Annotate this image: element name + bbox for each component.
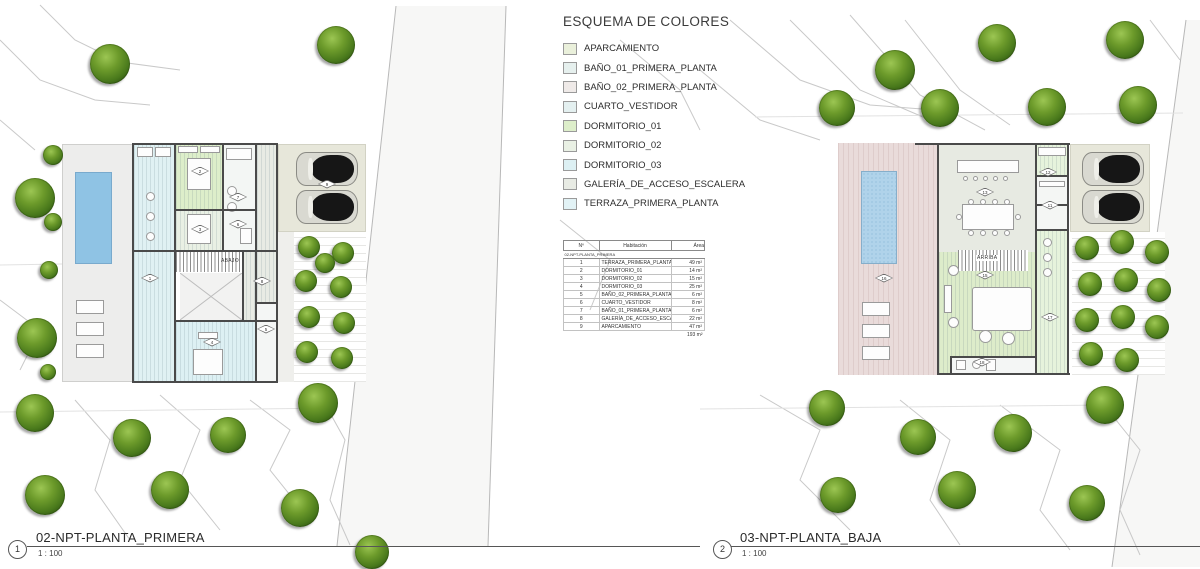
room-tag: 11 xyxy=(1041,201,1059,210)
legend-swatch xyxy=(563,120,577,132)
wall xyxy=(937,373,1070,375)
view-scale: 1 : 100 xyxy=(38,549,62,558)
schedule-cell-num: 9 xyxy=(564,323,600,331)
wall xyxy=(950,356,952,375)
legend-item: CUARTO_VESTIDOR xyxy=(563,97,745,116)
legend-item: DORMITORIO_03 xyxy=(563,155,745,174)
stool xyxy=(983,176,988,181)
room-tag: 15 xyxy=(976,271,994,280)
room-tag: 17 xyxy=(1041,313,1059,322)
schedule-row: 8GALERÍA_DE_ACCESO_ESCALERA22 m² xyxy=(564,315,705,323)
schedule-row: 6CUARTO_VESTIDOR8 m² xyxy=(564,299,705,307)
wardrobe xyxy=(200,146,220,153)
view-number-badge: 2 xyxy=(713,540,732,559)
wall xyxy=(174,145,176,381)
stair-direction-label: ARRIBA xyxy=(976,255,998,261)
wall xyxy=(222,145,224,252)
schedule-cell-name: DORMITORIO_01 xyxy=(599,267,671,275)
wall xyxy=(174,320,277,322)
schedule-cell-area: 14 m² xyxy=(671,267,704,275)
schedule-cell-name: DORMITORIO_02 xyxy=(599,275,671,283)
schedule-cell-num: 3 xyxy=(564,275,600,283)
schedule-body: 02-NPT-PLANTA_PRIMERA 1TERRAZA_PRIMERA_P… xyxy=(564,251,705,331)
court-cross-lines xyxy=(180,273,242,320)
schedule-cell-name: TERRAZA_PRIMERA_PLANTA xyxy=(599,259,671,267)
schedule-cell-name: BAÑO_01_PRIMERA_PLANTA xyxy=(599,307,671,315)
room-tag: 6 xyxy=(229,220,247,229)
legend-swatch xyxy=(563,198,577,210)
shower xyxy=(240,228,252,244)
schedule-row: 3DORMITORIO_0215 m² xyxy=(564,275,705,283)
room-tag-number: 12 xyxy=(1039,168,1057,177)
color-scheme-legend: ESQUEMA DE COLORES APARCAMIENTOBAÑO_01_P… xyxy=(563,8,745,214)
bathtub xyxy=(226,148,252,160)
schedule-cell-area: 25 m² xyxy=(671,283,704,291)
chair xyxy=(968,199,974,205)
swimming-pool xyxy=(75,172,112,264)
sheet-canvas: ABAJO xyxy=(0,0,1200,567)
room-tag: 1 xyxy=(141,274,159,283)
room-tag-number: 13 xyxy=(976,188,994,197)
stair-direction-label: ABAJO xyxy=(221,258,239,264)
schedule-row: 1TERRAZA_PRIMERA_PLANTA49 m² xyxy=(564,259,705,267)
schedule-row: 4DORMITORIO_0325 m² xyxy=(564,283,705,291)
schedule-cell-name: APARCAMIENTO xyxy=(599,323,671,331)
view-title: 02-NPT-PLANTA_PRIMERA xyxy=(36,530,205,545)
closet xyxy=(1039,181,1065,187)
closet xyxy=(137,147,153,157)
schedule-row: 2DORMITORIO_0114 m² xyxy=(564,267,705,275)
room-bano-02 xyxy=(257,302,276,381)
room-tag-number: 9 xyxy=(318,180,336,189)
schedule-group-row: 02-NPT-PLANTA_PRIMERA xyxy=(564,251,705,259)
room-tag-number: 4 xyxy=(203,338,221,347)
schedule-cell-area: 6 m² xyxy=(671,291,704,299)
room-tag: 3 xyxy=(191,225,209,234)
schedule-cell-name: BAÑO_02_PRIMERA_PLANTA xyxy=(599,291,671,299)
room-tag: 7 xyxy=(229,193,247,202)
stool xyxy=(993,176,998,181)
side-walkway xyxy=(278,232,294,382)
chair xyxy=(968,230,974,236)
schedule-row: 7BAÑO_01_PRIMERA_PLANTA6 m² xyxy=(564,307,705,315)
schedule-cell-area: 15 m² xyxy=(671,275,704,283)
chair xyxy=(980,230,986,236)
room-tag-number: 18 xyxy=(973,358,991,367)
sun-lounger xyxy=(862,302,890,316)
legend-item-label: TERRAZA_PRIMERA_PLANTA xyxy=(584,198,718,209)
sun-lounger xyxy=(862,324,890,338)
legend-items: APARCAMIENTOBAÑO_01_PRIMERA_PLANTABAÑO_0… xyxy=(563,39,745,214)
wall xyxy=(950,356,1036,358)
room-tag: 9 xyxy=(318,180,336,189)
legend-item-label: BAÑO_02_PRIMERA_PLANTA xyxy=(584,82,717,93)
legend-item: BAÑO_01_PRIMERA_PLANTA xyxy=(563,58,745,77)
legend-item-label: DORMITORIO_02 xyxy=(584,140,661,151)
legend-swatch xyxy=(563,62,577,74)
room-tag: 5 xyxy=(257,325,275,334)
terrace-plant xyxy=(146,212,155,221)
room-tag: 4 xyxy=(203,338,221,347)
sun-lounger xyxy=(76,300,104,314)
schedule-header-number: Nº xyxy=(564,241,600,251)
legend-title: ESQUEMA DE COLORES xyxy=(563,14,745,29)
schedule-row: 5BAÑO_02_PRIMERA_PLANTA6 m² xyxy=(564,291,705,299)
legend-item-label: DORMITORIO_03 xyxy=(584,160,661,171)
room-tag-number: 2 xyxy=(191,167,209,176)
console xyxy=(944,285,952,313)
sofa xyxy=(972,287,1032,331)
legend-swatch xyxy=(563,140,577,152)
chair xyxy=(1004,230,1010,236)
schedule-cell-area: 6 m² xyxy=(671,307,704,315)
schedule-cell-num: 1 xyxy=(564,259,600,267)
wall xyxy=(1035,143,1037,375)
dining-table xyxy=(962,204,1014,230)
legend-item: DORMITORIO_02 xyxy=(563,136,745,155)
schedule-total-row: 193 m² xyxy=(564,331,705,339)
chair xyxy=(1004,199,1010,205)
chair xyxy=(992,230,998,236)
legend-item-label: APARCAMIENTO xyxy=(584,43,659,54)
legend-item-label: DORMITORIO_01 xyxy=(584,121,661,132)
room-tag-number: 17 xyxy=(1041,313,1059,322)
chair xyxy=(1015,214,1021,220)
room-tag-number: 7 xyxy=(229,193,247,202)
room-tag-number: 1 xyxy=(141,274,159,283)
wall xyxy=(937,143,939,375)
legend-item: APARCAMIENTO xyxy=(563,39,745,58)
garden-strip xyxy=(1072,232,1165,375)
schedule-cell-num: 7 xyxy=(564,307,600,315)
legend-item: BAÑO_02_PRIMERA_PLANTA xyxy=(563,78,745,97)
stool xyxy=(963,176,968,181)
schedule-cell-area: 49 m² xyxy=(671,259,704,267)
schedule-cell-num: 8 xyxy=(564,315,600,323)
wall xyxy=(1067,143,1069,375)
room-tag-number: 5 xyxy=(257,325,275,334)
schedule-cell-name: CUARTO_VESTIDOR xyxy=(599,299,671,307)
legend-item: TERRAZA_PRIMERA_PLANTA xyxy=(563,194,745,213)
swimming-pool xyxy=(861,171,897,264)
schedule-cell-name: DORMITORIO_03 xyxy=(599,283,671,291)
chair xyxy=(992,199,998,205)
wardrobe xyxy=(178,146,198,153)
legend-swatch xyxy=(563,178,577,190)
car-cabin xyxy=(1097,193,1140,221)
schedule-cell-num: 2 xyxy=(564,267,600,275)
room-terraza xyxy=(134,145,174,381)
porch-plant xyxy=(1043,238,1052,247)
porch-plant xyxy=(1043,253,1052,262)
coffee-table xyxy=(1002,332,1015,345)
car xyxy=(1082,152,1144,186)
view-title-line xyxy=(731,546,1200,547)
closet xyxy=(155,147,171,157)
sun-lounger xyxy=(76,344,104,358)
stool xyxy=(973,176,978,181)
wall xyxy=(132,250,278,252)
view-number-badge: 1 xyxy=(8,540,27,559)
room-entrada xyxy=(1036,206,1067,230)
path xyxy=(180,273,242,320)
wall xyxy=(132,381,278,383)
schedule-header-row: Nº Habitación Área xyxy=(564,241,705,251)
chair xyxy=(980,199,986,205)
tfoot: 193 m² xyxy=(564,331,705,339)
legend-item-label: GALERÍA_DE_ACCESO_ESCALERA xyxy=(584,179,745,190)
thead: Nº Habitación Área xyxy=(564,241,705,251)
sun-lounger xyxy=(76,322,104,336)
room-tag: 18 xyxy=(973,358,991,367)
wall xyxy=(255,302,277,304)
car xyxy=(296,190,358,224)
room-tag: 16 xyxy=(875,274,893,283)
room-schedule-table: Nº Habitación Área 02-NPT-PLANTA_PRIMERA… xyxy=(563,240,705,338)
legend-item-label: BAÑO_01_PRIMERA_PLANTA xyxy=(584,63,717,74)
sun-lounger xyxy=(862,346,890,360)
terrace-plant xyxy=(146,192,155,201)
kitchen-island xyxy=(957,160,1019,173)
room-tag-number: 3 xyxy=(191,225,209,234)
wall xyxy=(242,250,244,320)
legend-swatch xyxy=(563,159,577,171)
bed xyxy=(193,349,223,375)
room-tag: 2 xyxy=(191,167,209,176)
legend-swatch xyxy=(563,43,577,55)
room-tag: 13 xyxy=(976,188,994,197)
stool xyxy=(1003,176,1008,181)
legend-item: DORMITORIO_01 xyxy=(563,117,745,136)
chair xyxy=(956,214,962,220)
room-tag-number: 8 xyxy=(253,277,271,286)
view-scale: 1 : 100 xyxy=(742,549,766,558)
porch-plant xyxy=(1043,268,1052,277)
room-tag-number: 15 xyxy=(976,271,994,280)
wall xyxy=(132,143,134,383)
armchair xyxy=(948,265,959,276)
armchair xyxy=(948,317,959,328)
room-tag-number: 6 xyxy=(229,220,247,229)
closet xyxy=(1038,147,1066,156)
room-tag: 8 xyxy=(253,277,271,286)
coffee-table xyxy=(979,330,992,343)
legend-item-label: CUARTO_VESTIDOR xyxy=(584,101,678,112)
schedule-cell-area: 47 m² xyxy=(671,323,704,331)
terrace-plant xyxy=(146,232,155,241)
room-tag-number: 16 xyxy=(875,274,893,283)
schedule-cell-area: 22 m² xyxy=(671,315,704,323)
car-cabin xyxy=(311,193,354,221)
garden-strip xyxy=(294,232,366,382)
schedule-total-value: 193 m² xyxy=(564,331,705,339)
view-title: 03-NPT-PLANTA_BAJA xyxy=(740,530,881,545)
wall xyxy=(255,145,257,381)
schedule-group-label: 02-NPT-PLANTA_PRIMERA xyxy=(564,251,705,259)
sink xyxy=(956,360,966,370)
schedule-cell-num: 6 xyxy=(564,299,600,307)
schedule-cell-num: 4 xyxy=(564,283,600,291)
wall xyxy=(1035,229,1068,231)
schedule-cell-area: 8 m² xyxy=(671,299,704,307)
car-cabin xyxy=(1097,155,1140,183)
legend-swatch xyxy=(563,101,577,113)
schedule-cell-name: GALERÍA_DE_ACCESO_ESCALERA xyxy=(599,315,671,323)
room-tag-number: 11 xyxy=(1041,201,1059,210)
view-title-line xyxy=(27,546,700,547)
legend-item: GALERÍA_DE_ACCESO_ESCALERA xyxy=(563,175,745,194)
legend-swatch xyxy=(563,81,577,93)
schedule-cell-num: 5 xyxy=(564,291,600,299)
schedule-row: 9APARCAMIENTO47 m² xyxy=(564,323,705,331)
car xyxy=(1082,190,1144,224)
schedule-header-room: Habitación xyxy=(599,241,671,251)
room-tag: 12 xyxy=(1039,168,1057,177)
schedule-header-area: Área xyxy=(671,241,704,251)
wall xyxy=(174,209,257,211)
